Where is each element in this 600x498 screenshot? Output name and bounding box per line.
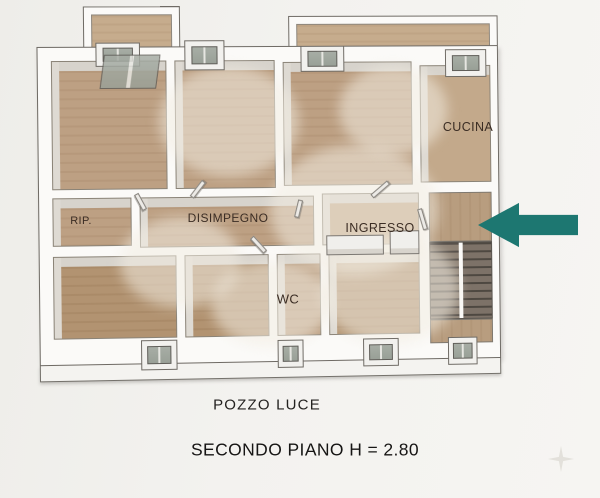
glass-pane (282, 345, 299, 362)
window-light-well-2 (278, 340, 304, 368)
wardrobe-box (390, 230, 420, 254)
glass-pane (369, 344, 393, 361)
window-cucina (445, 49, 487, 77)
window-light-well-4 (448, 337, 478, 365)
glass-pane (453, 342, 472, 359)
wardrobe-box (326, 235, 384, 256)
open-glass-door (100, 54, 161, 89)
glass-pane (191, 46, 218, 64)
watermark-star-icon (548, 446, 574, 472)
floorplan-canvas: RIP. DISIMPEGNO INGRESSO CUCINA WC POZZO… (0, 0, 600, 498)
stair-flight-right (463, 242, 492, 318)
glass-pane (308, 51, 337, 66)
glass-pane (147, 346, 171, 364)
balcony-door-living (300, 46, 344, 72)
glass-pane (452, 55, 480, 72)
caption-pozzo-luce: POZZO LUCE (213, 397, 321, 414)
window-light-well-1 (141, 340, 178, 371)
window-top-mid (184, 40, 224, 70)
watermark-blob (338, 65, 448, 155)
window-light-well-3 (363, 338, 399, 366)
caption-floor-title: SECONDO PIANO H = 2.80 (191, 440, 419, 461)
room-rip-floor (52, 198, 132, 247)
floor-plan-3d (36, 5, 509, 384)
